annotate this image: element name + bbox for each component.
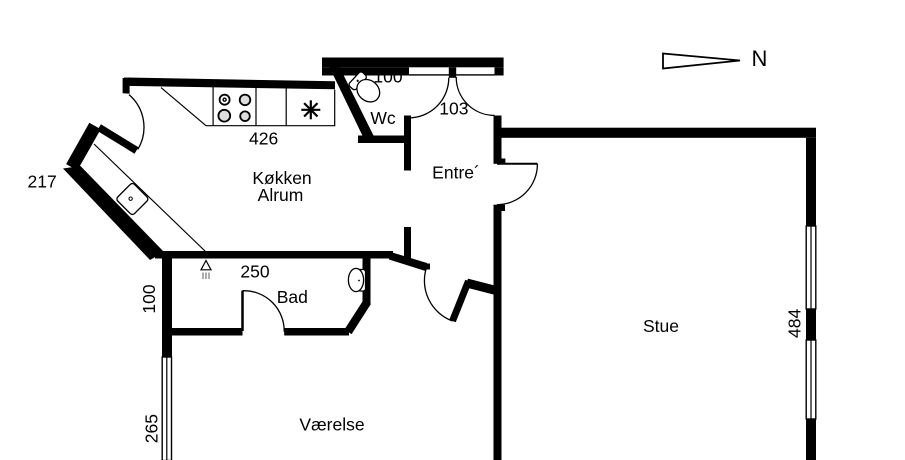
svg-text:217: 217: [27, 171, 56, 191]
svg-text:100: 100: [373, 66, 402, 86]
svg-text:Værelse: Værelse: [299, 414, 364, 434]
svg-text:Entre´: Entre´: [432, 163, 480, 183]
svg-text:426: 426: [249, 128, 278, 148]
svg-text:Alrum: Alrum: [258, 185, 304, 205]
svg-text:250: 250: [240, 261, 269, 281]
svg-text:Stue: Stue: [643, 316, 679, 336]
svg-text:484: 484: [785, 309, 805, 338]
svg-text:265: 265: [141, 414, 161, 443]
svg-text:Bad: Bad: [277, 287, 308, 307]
svg-text:N: N: [752, 46, 768, 71]
svg-text:100: 100: [139, 284, 159, 313]
svg-text:103: 103: [439, 98, 468, 118]
svg-text:Wc: Wc: [370, 108, 396, 128]
